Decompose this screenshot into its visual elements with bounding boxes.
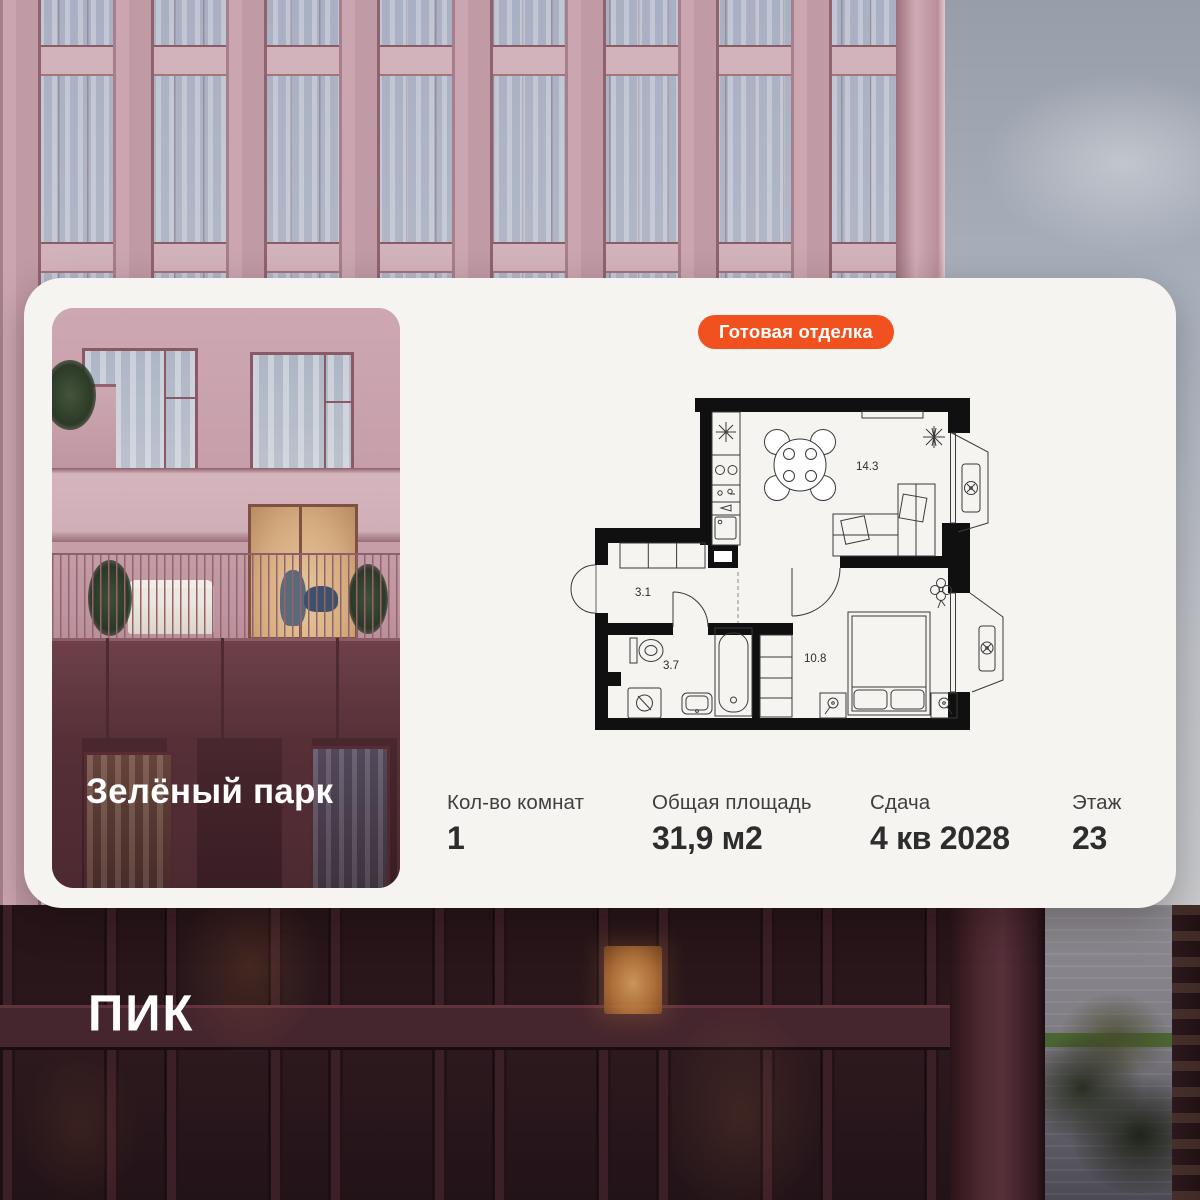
stat-floor-label: Этаж bbox=[1072, 791, 1121, 815]
stat-rooms-value: 1 bbox=[447, 820, 584, 857]
stat-rooms-label: Кол-во комнат bbox=[447, 791, 584, 815]
background-dark-pilaster bbox=[950, 905, 1045, 1200]
background-right-building bbox=[1172, 905, 1200, 1200]
stat-completion-label: Сдача bbox=[870, 791, 1010, 815]
stat-completion: Сдача 4 кв 2028 bbox=[870, 791, 1010, 857]
background-street-view bbox=[1045, 905, 1172, 1200]
plan-shaft bbox=[714, 551, 732, 562]
background-dark-facade bbox=[0, 905, 1045, 1200]
room-area-bathroom: 3.7 bbox=[663, 660, 679, 672]
project-photo: Зелёный парк bbox=[52, 308, 400, 888]
room-area-hallway: 3.1 bbox=[635, 587, 651, 599]
stat-total-area-label: Общая площадь bbox=[652, 791, 812, 815]
stat-completion-value: 4 кв 2028 bbox=[870, 820, 1010, 857]
pik-logo: ПИК bbox=[88, 985, 194, 1043]
floor-plan: 14.3 3.1 3.7 10.8 bbox=[563, 386, 1015, 740]
stat-total-area-value: 31,9 м2 bbox=[652, 820, 812, 857]
stat-floor-value: 23 bbox=[1072, 820, 1121, 857]
listing-card[interactable]: Зелёный парк Готовая отделка bbox=[24, 278, 1176, 908]
room-area-kitchen-living: 14.3 bbox=[856, 461, 878, 473]
project-name: Зелёный парк bbox=[86, 772, 333, 812]
background-lit-window bbox=[604, 946, 662, 1014]
stat-total-area: Общая площадь 31,9 м2 bbox=[652, 791, 812, 857]
stat-rooms: Кол-во комнат 1 bbox=[447, 791, 584, 857]
finish-badge: Готовая отделка bbox=[698, 315, 894, 349]
room-area-bedroom: 10.8 bbox=[804, 653, 826, 665]
stat-floor: Этаж 23 bbox=[1072, 791, 1121, 857]
